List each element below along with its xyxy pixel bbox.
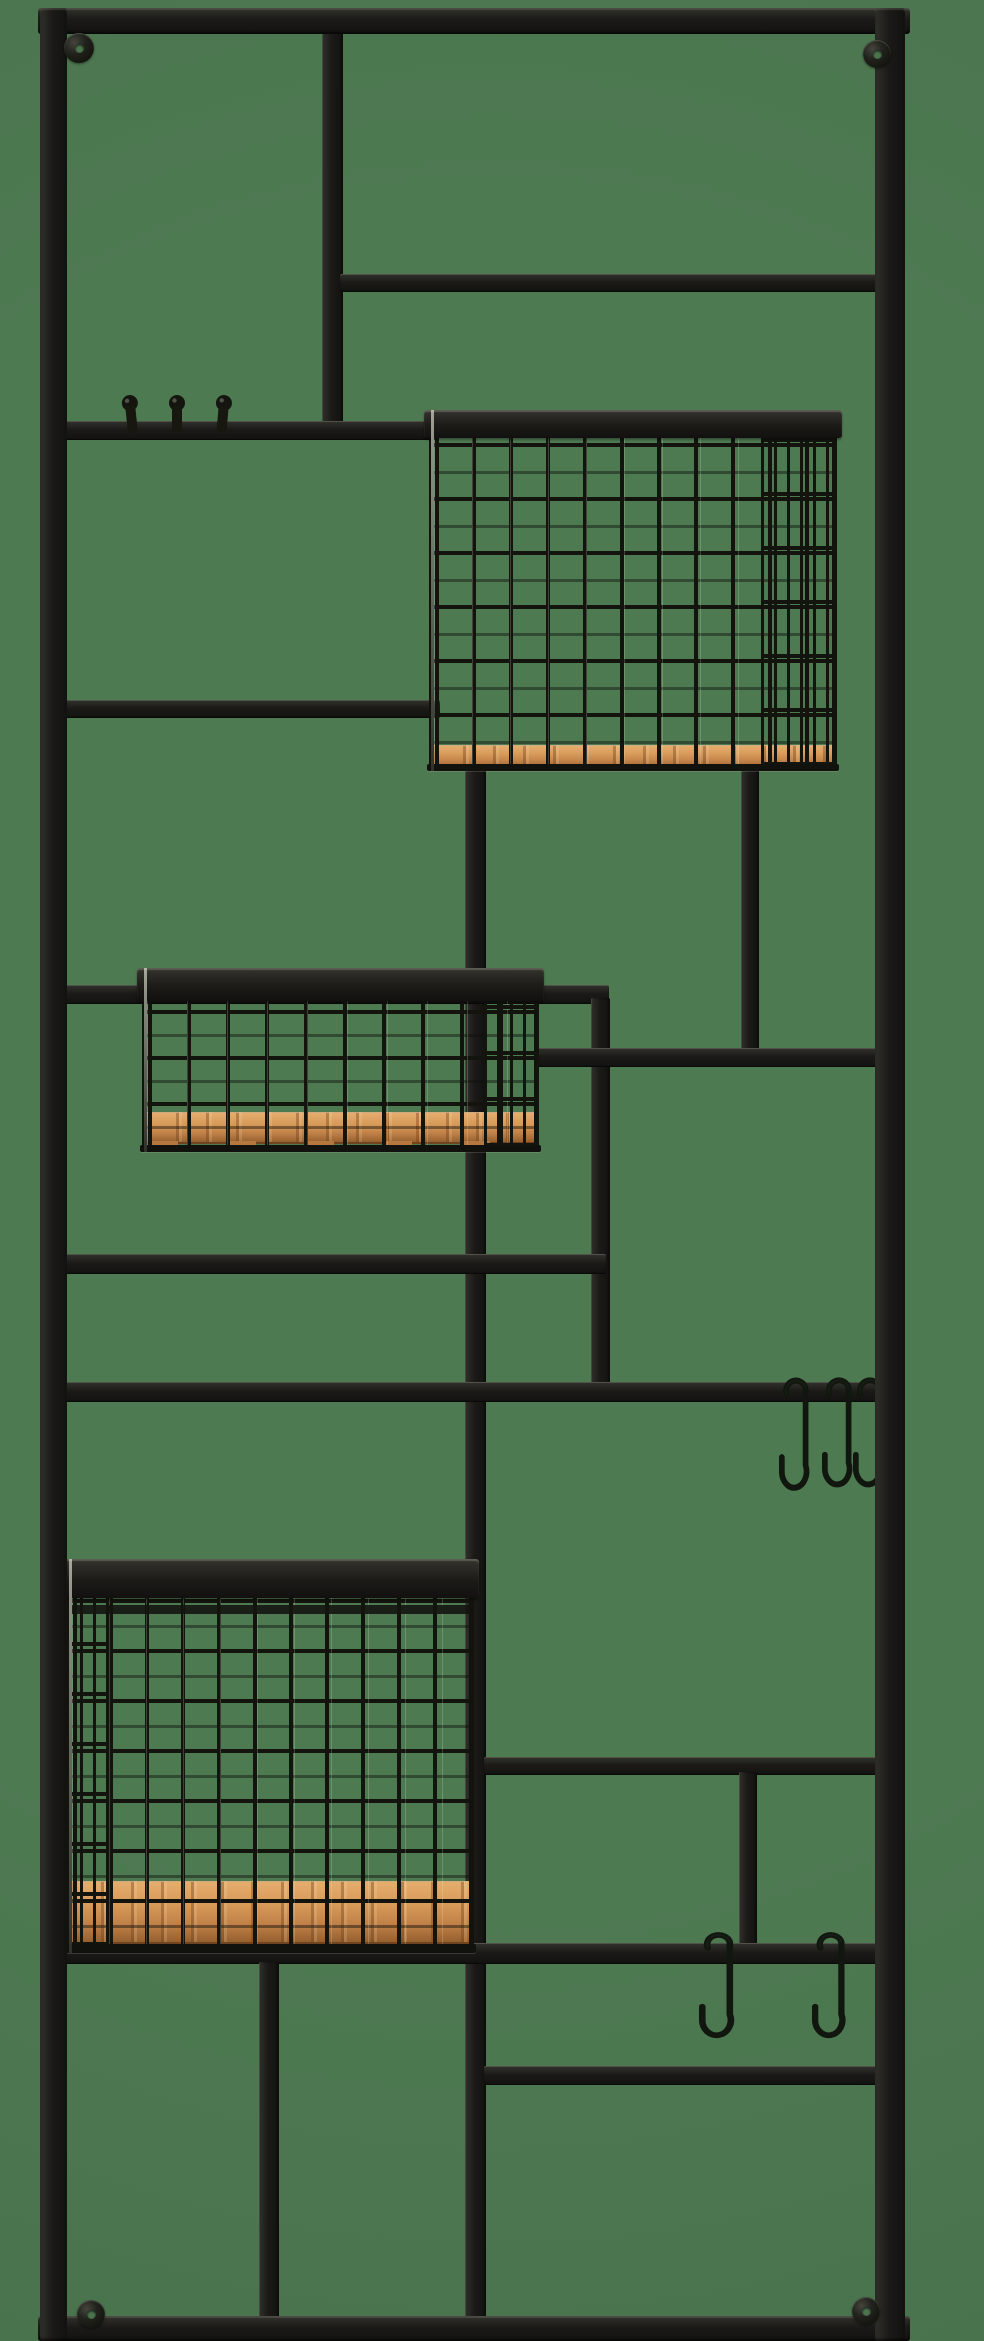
- upper-right-shelf-bar: [340, 274, 877, 292]
- basket-edge-highlight: [69, 1559, 72, 1953]
- basket-top-rail: [137, 968, 544, 1001]
- peg-hook-icon: [164, 394, 190, 434]
- lower-right-shelf-bar: [484, 1757, 877, 1775]
- s-hook-icon: [699, 1925, 743, 2058]
- peg-hook-icon: [116, 393, 146, 435]
- basket-edge-highlight: [144, 968, 147, 1152]
- under-basket1-vertical-bar: [741, 762, 759, 1060]
- mounting-screw-bottom-left: [77, 2300, 105, 2328]
- basket-bottom-rim: [140, 1145, 541, 1152]
- screw-hole: [87, 2310, 96, 2319]
- s-hook-rail-bar: [64, 1382, 877, 1402]
- s-hook-bottom-2: [812, 1925, 854, 2058]
- frame-left-bar: [40, 8, 67, 2341]
- basket-edge-highlight: [431, 410, 434, 771]
- product-photo-wall-organizer: [0, 0, 984, 2341]
- peg-hook-1: [116, 393, 146, 435]
- screw-hole: [75, 44, 84, 53]
- mounting-screw-top-right: [863, 40, 891, 68]
- frame-right-bar: [875, 8, 905, 2341]
- wire-basket-bottom-left: [67, 1559, 474, 1953]
- s-hook-icon: [779, 1370, 817, 1512]
- basket-side-wall-mesh: [484, 999, 539, 1147]
- peg-hook-3: [208, 393, 237, 435]
- left-lower-shelf-bar: [64, 1254, 606, 1274]
- right-mid-shelf-bar: [537, 1048, 878, 1067]
- basket-top-rail: [424, 410, 842, 438]
- basket-inner-rail: [71, 1605, 470, 1614]
- frame-top-bar: [38, 8, 910, 34]
- basket-side-wall-mesh: [761, 436, 837, 766]
- s-hook-bottom-1: [699, 1925, 743, 2058]
- wire-basket-middle-left: [142, 968, 539, 1152]
- left-mid-shelf-bar: [64, 700, 440, 718]
- bottom-left-vertical-bar: [259, 1962, 279, 2322]
- mounting-screw-bottom-right: [852, 2297, 880, 2325]
- basket-wire-mesh: [142, 997, 539, 1152]
- basket-bottom-rim: [65, 1944, 476, 1953]
- frame-bottom-bar: [38, 2316, 910, 2341]
- basket-bottom-rim: [427, 764, 839, 771]
- screw-hole: [873, 50, 882, 59]
- basket-wire-mesh: [67, 1594, 474, 1953]
- peg-hook-icon: [208, 393, 237, 435]
- top-divider-bar: [322, 30, 343, 432]
- wire-basket-top-right: [429, 410, 837, 771]
- lower-right-vertical-bar: [739, 1772, 757, 1950]
- s-hook-icon: [812, 1925, 854, 2058]
- basket-side-wall-mesh: [67, 1596, 109, 1946]
- s-hook-middle-1: [779, 1370, 817, 1512]
- basket-top-rail: [62, 1559, 479, 1598]
- peg-hook-2: [164, 394, 190, 434]
- bottom-right-shelf-bar: [484, 2066, 877, 2085]
- mounting-screw-top-left: [64, 33, 94, 63]
- screw-hole: [862, 2307, 871, 2316]
